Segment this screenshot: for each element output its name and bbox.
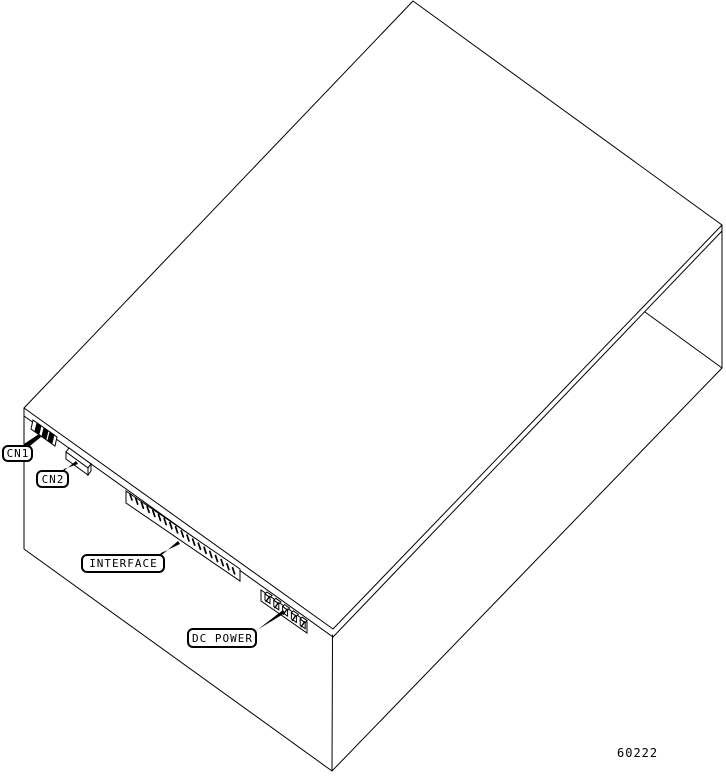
figure-number: 60222 <box>617 746 658 760</box>
callout-cn2-label: CN2 <box>41 474 65 485</box>
callout-cn1-label: CN1 <box>6 448 30 459</box>
callout-dc-power-label: DC POWER <box>191 633 253 644</box>
front-vertical-edge <box>332 635 333 771</box>
enclosure-silhouette <box>24 1 722 771</box>
technical-diagram: CN1 CN2 INTERFACE DC POWER 60222 <box>0 0 726 776</box>
callout-cn1: CN1 <box>2 445 33 462</box>
callout-interface: INTERFACE <box>81 554 165 573</box>
diagram-line-art <box>0 0 726 776</box>
callout-interface-label: INTERFACE <box>88 558 158 569</box>
callout-cn2: CN2 <box>36 470 69 488</box>
enclosure-box <box>24 1 722 771</box>
callout-dc-power: DC POWER <box>187 628 257 648</box>
